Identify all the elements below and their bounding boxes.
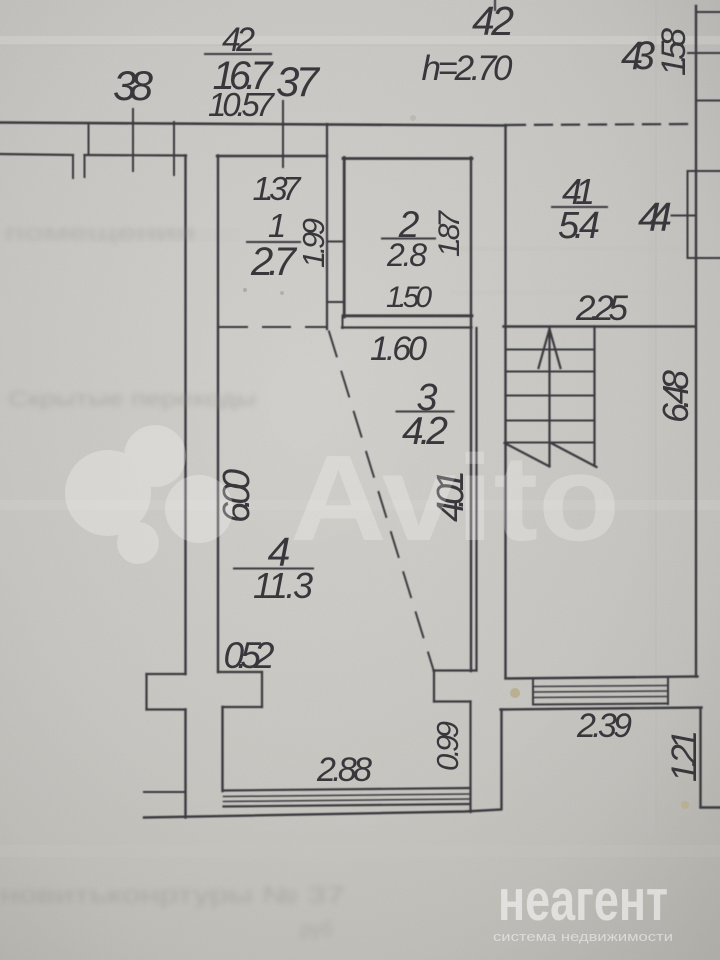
svg-text:h=2.70: h=2.70 [422,49,514,88]
svg-text:43: 43 [621,34,655,78]
svg-text:1.60: 1.60 [370,330,427,368]
svg-text:2.7: 2.7 [250,240,298,284]
svg-text:1.50: 1.50 [386,281,432,314]
svg-text:2.88: 2.88 [316,751,372,789]
svg-text:1.99: 1.99 [296,218,331,268]
svg-text:2.25: 2.25 [575,289,629,328]
svg-text:44: 44 [638,194,672,240]
svg-text:37: 37 [276,58,321,105]
svg-text:1: 1 [268,207,286,244]
svg-text:11.3: 11.3 [253,565,313,606]
svg-text:2.8: 2.8 [386,237,427,273]
svg-text:0.52: 0.52 [224,635,275,676]
svg-text:система недвижимости: система недвижимости [493,929,673,944]
svg-text:1.21: 1.21 [665,730,704,782]
svg-text:неагент: неагент [498,868,668,933]
svg-text:1.37: 1.37 [253,170,303,207]
svg-text:Avito: Avito [290,430,620,566]
svg-text:2.39: 2.39 [576,707,632,745]
svg-text:Скрытые переходы: Скрытые переходы [8,388,256,411]
svg-text:6.48: 6.48 [655,370,696,423]
svg-text:1.87: 1.87 [433,210,466,257]
svg-text:руб: руб [300,919,333,941]
svg-text:10.57: 10.57 [208,86,276,123]
svg-text:0.99: 0.99 [430,721,465,771]
svg-text:помещения: помещения [5,220,195,245]
svg-text:38: 38 [113,62,154,109]
svg-text:42: 42 [472,0,514,44]
svg-text:1.58: 1.58 [655,28,693,76]
svg-text:новитьконртуры № 37: новитьконртуры № 37 [0,882,345,909]
svg-text:5.4: 5.4 [558,205,600,247]
